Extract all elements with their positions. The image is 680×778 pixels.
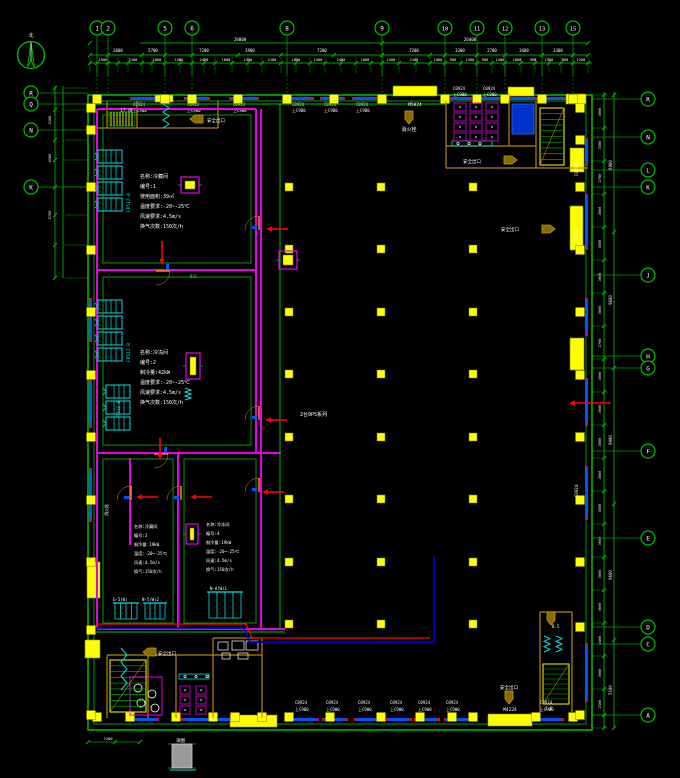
room-annotation: 温度要求:-20~-25℃ (140, 379, 190, 386)
door-threshold (252, 226, 257, 229)
building-outline (88, 95, 592, 730)
dim-label: 900 (530, 58, 537, 62)
dim-label: 28800 (234, 37, 247, 42)
dim-label: 2700 (487, 48, 497, 53)
window-jamb (346, 718, 348, 721)
sink (206, 675, 208, 677)
dim-label: 2400 (598, 636, 602, 645)
column (377, 245, 385, 253)
axis-bubble-label: 13 (539, 26, 546, 32)
toilet-fixture (475, 136, 477, 138)
toilet-fixture (200, 709, 202, 711)
column (576, 371, 585, 380)
dim-label: 3600 (598, 603, 602, 612)
exit-arrow-icon (505, 691, 513, 704)
plan-label: B.5 (552, 624, 560, 629)
plan-label: 安全出口 (158, 650, 176, 657)
axis-bubble-label: K (29, 184, 33, 191)
window (548, 97, 568, 100)
window (585, 380, 588, 424)
window (585, 468, 588, 518)
column (377, 433, 385, 441)
dim-label: 1500 (314, 58, 323, 62)
window-tag: 上C900 (418, 706, 432, 712)
dim-label: 1800 (434, 58, 443, 62)
window-jamb (343, 97, 345, 100)
column (161, 95, 170, 104)
window-jamb (444, 718, 446, 721)
room-annotation: 编号:3 (134, 532, 148, 539)
dim-label: 2400 (337, 58, 346, 62)
window-jamb (585, 334, 588, 336)
window-jamb (585, 700, 588, 702)
column (285, 370, 293, 378)
door-swing (156, 271, 170, 285)
axis-bubble-label: 12 (502, 26, 509, 32)
window-jamb (312, 97, 314, 100)
exit-arrow-icon (405, 111, 413, 124)
axis-bubble-label: 9 (380, 25, 384, 32)
room-annotation: 制冷量:42kW (140, 369, 171, 376)
window (512, 97, 536, 100)
dim-label: 1800 (513, 58, 522, 62)
room-annotation: 制冷量:19kW (134, 541, 160, 548)
column (469, 183, 477, 191)
dim-label: 3600 (598, 471, 602, 480)
window-jamb (510, 97, 512, 100)
column (87, 308, 96, 317)
room-trim (103, 277, 251, 445)
door-opening (508, 87, 534, 96)
fan-coil-unit (98, 182, 122, 195)
dim-label: 2100 (48, 116, 52, 125)
window-jamb (89, 468, 92, 470)
room-annotation: 换气次数:150次/h (140, 399, 183, 406)
room-annotation: 名称:冷冻间 (140, 349, 168, 356)
room-annotation: 换气:150次/h (206, 566, 234, 573)
plan-label: M4224 (503, 707, 517, 713)
plan-label: 安全出口 (501, 226, 519, 233)
column (569, 95, 578, 104)
flex-connector-icon (556, 636, 562, 652)
sink (468, 142, 470, 144)
door-opening (488, 714, 532, 726)
window-jamb (585, 378, 588, 380)
window (132, 97, 158, 100)
column (576, 623, 585, 632)
plan-label: J-8 (545, 706, 553, 711)
flow-arrow-head (159, 259, 164, 265)
column (473, 95, 482, 104)
window-jamb (470, 97, 472, 100)
dim-label: 2700 (598, 339, 602, 348)
column (285, 713, 294, 722)
axis-bubble-label: 15 (570, 26, 577, 32)
flex-connector-icon (544, 636, 550, 652)
room-annotation: 编号:2 (140, 359, 156, 366)
dim-label: 2100 (268, 58, 277, 62)
axis-bubble-label: 2 (106, 25, 110, 32)
plan-label: 详图 (176, 737, 185, 744)
toilet-fixture (491, 106, 493, 108)
dim-tick (88, 41, 92, 45)
axis-bubble-label: Q (29, 101, 33, 108)
room-annotation: 风速要求:4.5m/s (140, 389, 181, 396)
dim-label: 7200 (409, 48, 419, 53)
dim-label: 9600 (608, 295, 613, 305)
column (87, 558, 96, 567)
dim-label: 5100 (608, 685, 613, 695)
column (377, 183, 385, 191)
toilet-fixture (459, 116, 461, 118)
window (131, 718, 157, 721)
dim-label: 3600 (519, 48, 529, 53)
toilet-fixture (459, 136, 461, 138)
plan-label: 安全出口 (500, 684, 518, 691)
room-annotation: 名称:冷藏间 (134, 523, 157, 530)
column (576, 558, 585, 567)
window-jamb (585, 518, 588, 520)
column (469, 308, 477, 316)
window-jamb (181, 718, 183, 721)
window-jamb (157, 718, 159, 721)
dim-label: 900 (450, 58, 457, 62)
column (283, 95, 292, 104)
door-threshold (164, 447, 167, 452)
axis-bubble-label: 10 (442, 26, 449, 32)
column (285, 308, 293, 316)
equipment-block-core (190, 357, 196, 375)
toilet-fixture (475, 126, 477, 128)
column (441, 95, 450, 104)
window-jamb (450, 97, 452, 100)
fan-coil-unit (98, 332, 122, 345)
toilet-fixture (459, 126, 461, 128)
plan-label: B2C (190, 274, 198, 279)
window (290, 97, 312, 100)
column (285, 183, 293, 191)
stair (109, 112, 135, 126)
plan-label: N-A(W)1 (210, 586, 227, 591)
dim-label: 3300 (598, 141, 602, 150)
column (469, 370, 477, 378)
window (540, 718, 562, 721)
axis-bubble-label: G (646, 365, 650, 372)
dim-label: 3600 (598, 273, 602, 282)
window (89, 300, 92, 340)
column (234, 95, 243, 104)
round-table (148, 690, 156, 698)
dim-label: 1800 (292, 58, 301, 62)
dim-label: 900 (482, 58, 489, 62)
plan-label: FP51Z-B (126, 193, 132, 212)
column (87, 104, 96, 113)
column (469, 558, 477, 566)
column (576, 104, 585, 113)
window (585, 645, 588, 700)
window-jamb (354, 718, 356, 721)
window-tag: 上C900 (295, 706, 309, 712)
axis-bubble-label: A (646, 712, 650, 719)
flow-arrow-head (265, 417, 271, 422)
column (285, 245, 293, 253)
stair-flight (110, 660, 146, 712)
column (231, 713, 240, 722)
column (448, 713, 457, 722)
sink (195, 675, 197, 677)
dim-label: 3000 (598, 306, 602, 315)
dim-label: 2400 (200, 58, 209, 62)
window (183, 718, 209, 721)
dim-label: 3600 (598, 405, 602, 414)
dim-label: 2100 (598, 700, 602, 709)
column (87, 371, 96, 380)
door-threshold (166, 264, 169, 269)
dim-label: 3600 (598, 108, 602, 117)
toilet-fixture (200, 689, 202, 691)
plan-label: 2台9P5系列 (300, 411, 327, 418)
room-annotation: 制冷量:19kW (206, 539, 232, 546)
window-jamb (320, 97, 322, 100)
plan-label: 安全出口 (207, 117, 225, 124)
compass-label: 北 (28, 32, 33, 39)
room-annotation: 换气次数:150次/h (140, 223, 183, 230)
column (377, 713, 386, 722)
window-jamb (375, 97, 377, 100)
window-tag: C0924 (358, 700, 371, 705)
window-jamb (322, 718, 324, 721)
window (89, 470, 92, 520)
column (469, 620, 477, 628)
column (576, 246, 585, 255)
window-jamb (130, 97, 132, 100)
column (377, 620, 385, 628)
room-annotation: 使用面积:39㎡ (140, 193, 174, 200)
dim-label: 6900 (608, 160, 613, 170)
axis-bubble-label: L (646, 167, 650, 174)
fan-coil-unit (98, 300, 122, 313)
window (452, 97, 470, 100)
window (89, 382, 92, 426)
round-table (134, 684, 142, 692)
window-jamb (585, 248, 588, 250)
plan-label: 消火栓 (103, 504, 109, 516)
dim-label: 5700 (48, 211, 52, 220)
window-jamb (89, 340, 92, 342)
round-table (151, 704, 159, 712)
column (330, 95, 339, 104)
column (377, 308, 385, 316)
column (326, 713, 335, 722)
exit-arrow-icon (542, 225, 555, 233)
equipment-fixture (238, 653, 248, 659)
dim-label: 1500 (244, 58, 253, 62)
window-tag: C0924 (326, 700, 339, 705)
room-annotation: 编号:1 (140, 183, 156, 190)
column (188, 95, 197, 104)
window-tag: 上C900 (326, 706, 340, 712)
toilet-fixture (491, 126, 493, 128)
shaft (512, 104, 534, 134)
room-annotation: 温度:-20~-25℃ (206, 548, 240, 555)
column (576, 183, 585, 192)
detail-block (172, 744, 192, 768)
column (576, 711, 585, 720)
door-opening (570, 206, 583, 250)
column (416, 713, 425, 722)
toilet-fixture (475, 116, 477, 118)
column (285, 495, 293, 503)
plan-label: M5024 (408, 102, 422, 108)
window-tag: 上C900 (356, 107, 370, 113)
dim-label: 3300 (553, 48, 563, 53)
dim-label: 2100 (129, 58, 138, 62)
sink (184, 675, 186, 677)
axis-bubble-label: R (29, 90, 33, 97)
dim-label: 1500 (99, 58, 108, 62)
window-jamb (438, 718, 440, 721)
window-jamb (585, 298, 588, 300)
plan-label: 安全出口 (463, 158, 481, 165)
window-jamb (410, 718, 412, 721)
dim-label: 5700 (148, 48, 158, 53)
equipment-fixture (232, 641, 244, 650)
room-annotation: 风速:4.5m/s (206, 558, 233, 564)
drawing-area[interactable]: 2880026400360057007200390072007200330027… (0, 0, 680, 778)
dim-label: 1200 (577, 58, 586, 62)
fan-coil-unit (106, 385, 130, 398)
plan-label: G-5(W) (113, 597, 127, 602)
dim-label: 3000 (598, 504, 602, 513)
column (469, 713, 478, 722)
axis-bubble-label: H (646, 353, 650, 360)
fan-coil-unit (98, 166, 122, 179)
window (388, 718, 410, 721)
column (87, 496, 96, 505)
column (576, 136, 585, 145)
toilet-fixture (184, 689, 186, 691)
window (585, 140, 588, 164)
room-annotation: 风速:4.5m/s (134, 560, 161, 566)
window (356, 718, 378, 721)
cad-floor-plan-canvas[interactable]: 2880026400360057007200390072007200330027… (0, 0, 680, 778)
door-threshold (124, 496, 129, 499)
plan-label: C0924 (574, 484, 579, 497)
axis-bubble-label: 8 (285, 25, 289, 32)
equipment-block-core (283, 255, 293, 265)
plan-label: 17.8F (120, 108, 134, 114)
axis-bubble-label: N (646, 134, 650, 141)
column (378, 95, 387, 104)
equipment-fixture (222, 653, 230, 659)
window (293, 718, 317, 721)
window-jamb (229, 97, 231, 100)
flex-connector-icon (121, 648, 127, 690)
axis-bubble-label: F (646, 448, 650, 455)
axis-bubble-label: 1 (95, 25, 99, 32)
equipment-block-core (190, 528, 194, 540)
window-jamb (89, 520, 92, 522)
axis-bubble-label: K (646, 184, 650, 191)
axis-bubble-label: N (29, 127, 33, 134)
dim-label: 1800 (361, 58, 370, 62)
dim-label: 7200 (199, 48, 209, 53)
fan-coil-unit (98, 348, 122, 361)
fan-coil-unit (98, 198, 122, 211)
equipment-fixture (218, 642, 228, 650)
fan-coil-unit (98, 316, 122, 329)
sink (457, 142, 459, 144)
axis-bubble-label: 6 (190, 25, 194, 32)
dim-label: 3900 (245, 48, 255, 53)
window-tag: 上C900 (292, 107, 306, 113)
axis-bubble-label: E (646, 535, 650, 542)
window-tag: C0924 (390, 700, 403, 705)
dim-label: 3600 (113, 48, 123, 53)
door-threshold (174, 496, 179, 499)
dim-label: 3000 (598, 570, 602, 579)
dim-label: 1800 (222, 58, 231, 62)
window-tag: C0924 (453, 86, 466, 91)
dim-label: 3000 (598, 240, 602, 249)
window-jamb (89, 298, 92, 300)
window (585, 300, 588, 334)
room-annotation: 名称:冷冻间 (206, 521, 229, 528)
door-opening (87, 562, 100, 598)
toilet-fixture (200, 699, 202, 701)
toilet-fixture (459, 106, 461, 108)
axis-bubble-label: C (646, 641, 650, 648)
window-jamb (386, 718, 388, 721)
column (285, 558, 293, 566)
exit-arrow-icon (190, 115, 203, 123)
dim-label: 9000 (608, 435, 613, 445)
window-tag: C0924 (418, 700, 431, 705)
dim-label: 3000 (598, 669, 602, 678)
room-annotation: 温度:-20~-25℃ (134, 550, 168, 557)
window-tag: 上C900 (453, 91, 467, 97)
toilet-fixture (491, 136, 493, 138)
window-tag: 上C900 (324, 107, 338, 113)
flow-arrow-head (569, 400, 575, 405)
axis-bubble-label: 11 (474, 26, 481, 32)
column (538, 95, 547, 104)
flex-connector-icon (185, 388, 191, 400)
dim-label: 4500 (48, 154, 52, 163)
window-jamb (585, 194, 588, 196)
dim-label: 1500 (466, 58, 475, 62)
dim-label: 9600 (608, 570, 613, 580)
column (93, 95, 102, 104)
window-jamb (89, 380, 92, 382)
door-opening (85, 640, 100, 658)
plan-label: 消火栓 (401, 126, 416, 133)
window-tag: C0924 (483, 86, 496, 91)
window-jamb (585, 643, 588, 645)
flow-arrow-head (262, 489, 268, 494)
column (469, 433, 477, 441)
sink-counter (452, 141, 492, 146)
room-annotation: 温度要求:-20~-25℃ (140, 203, 190, 210)
window-jamb (585, 466, 588, 468)
window-jamb (585, 138, 588, 140)
toilet-fixture (491, 116, 493, 118)
dim-label: 7200 (317, 48, 327, 53)
window-jamb (257, 97, 259, 100)
window-jamb (184, 97, 186, 100)
equipment-block-core (185, 181, 195, 189)
window-tag: 上C900 (483, 91, 497, 97)
